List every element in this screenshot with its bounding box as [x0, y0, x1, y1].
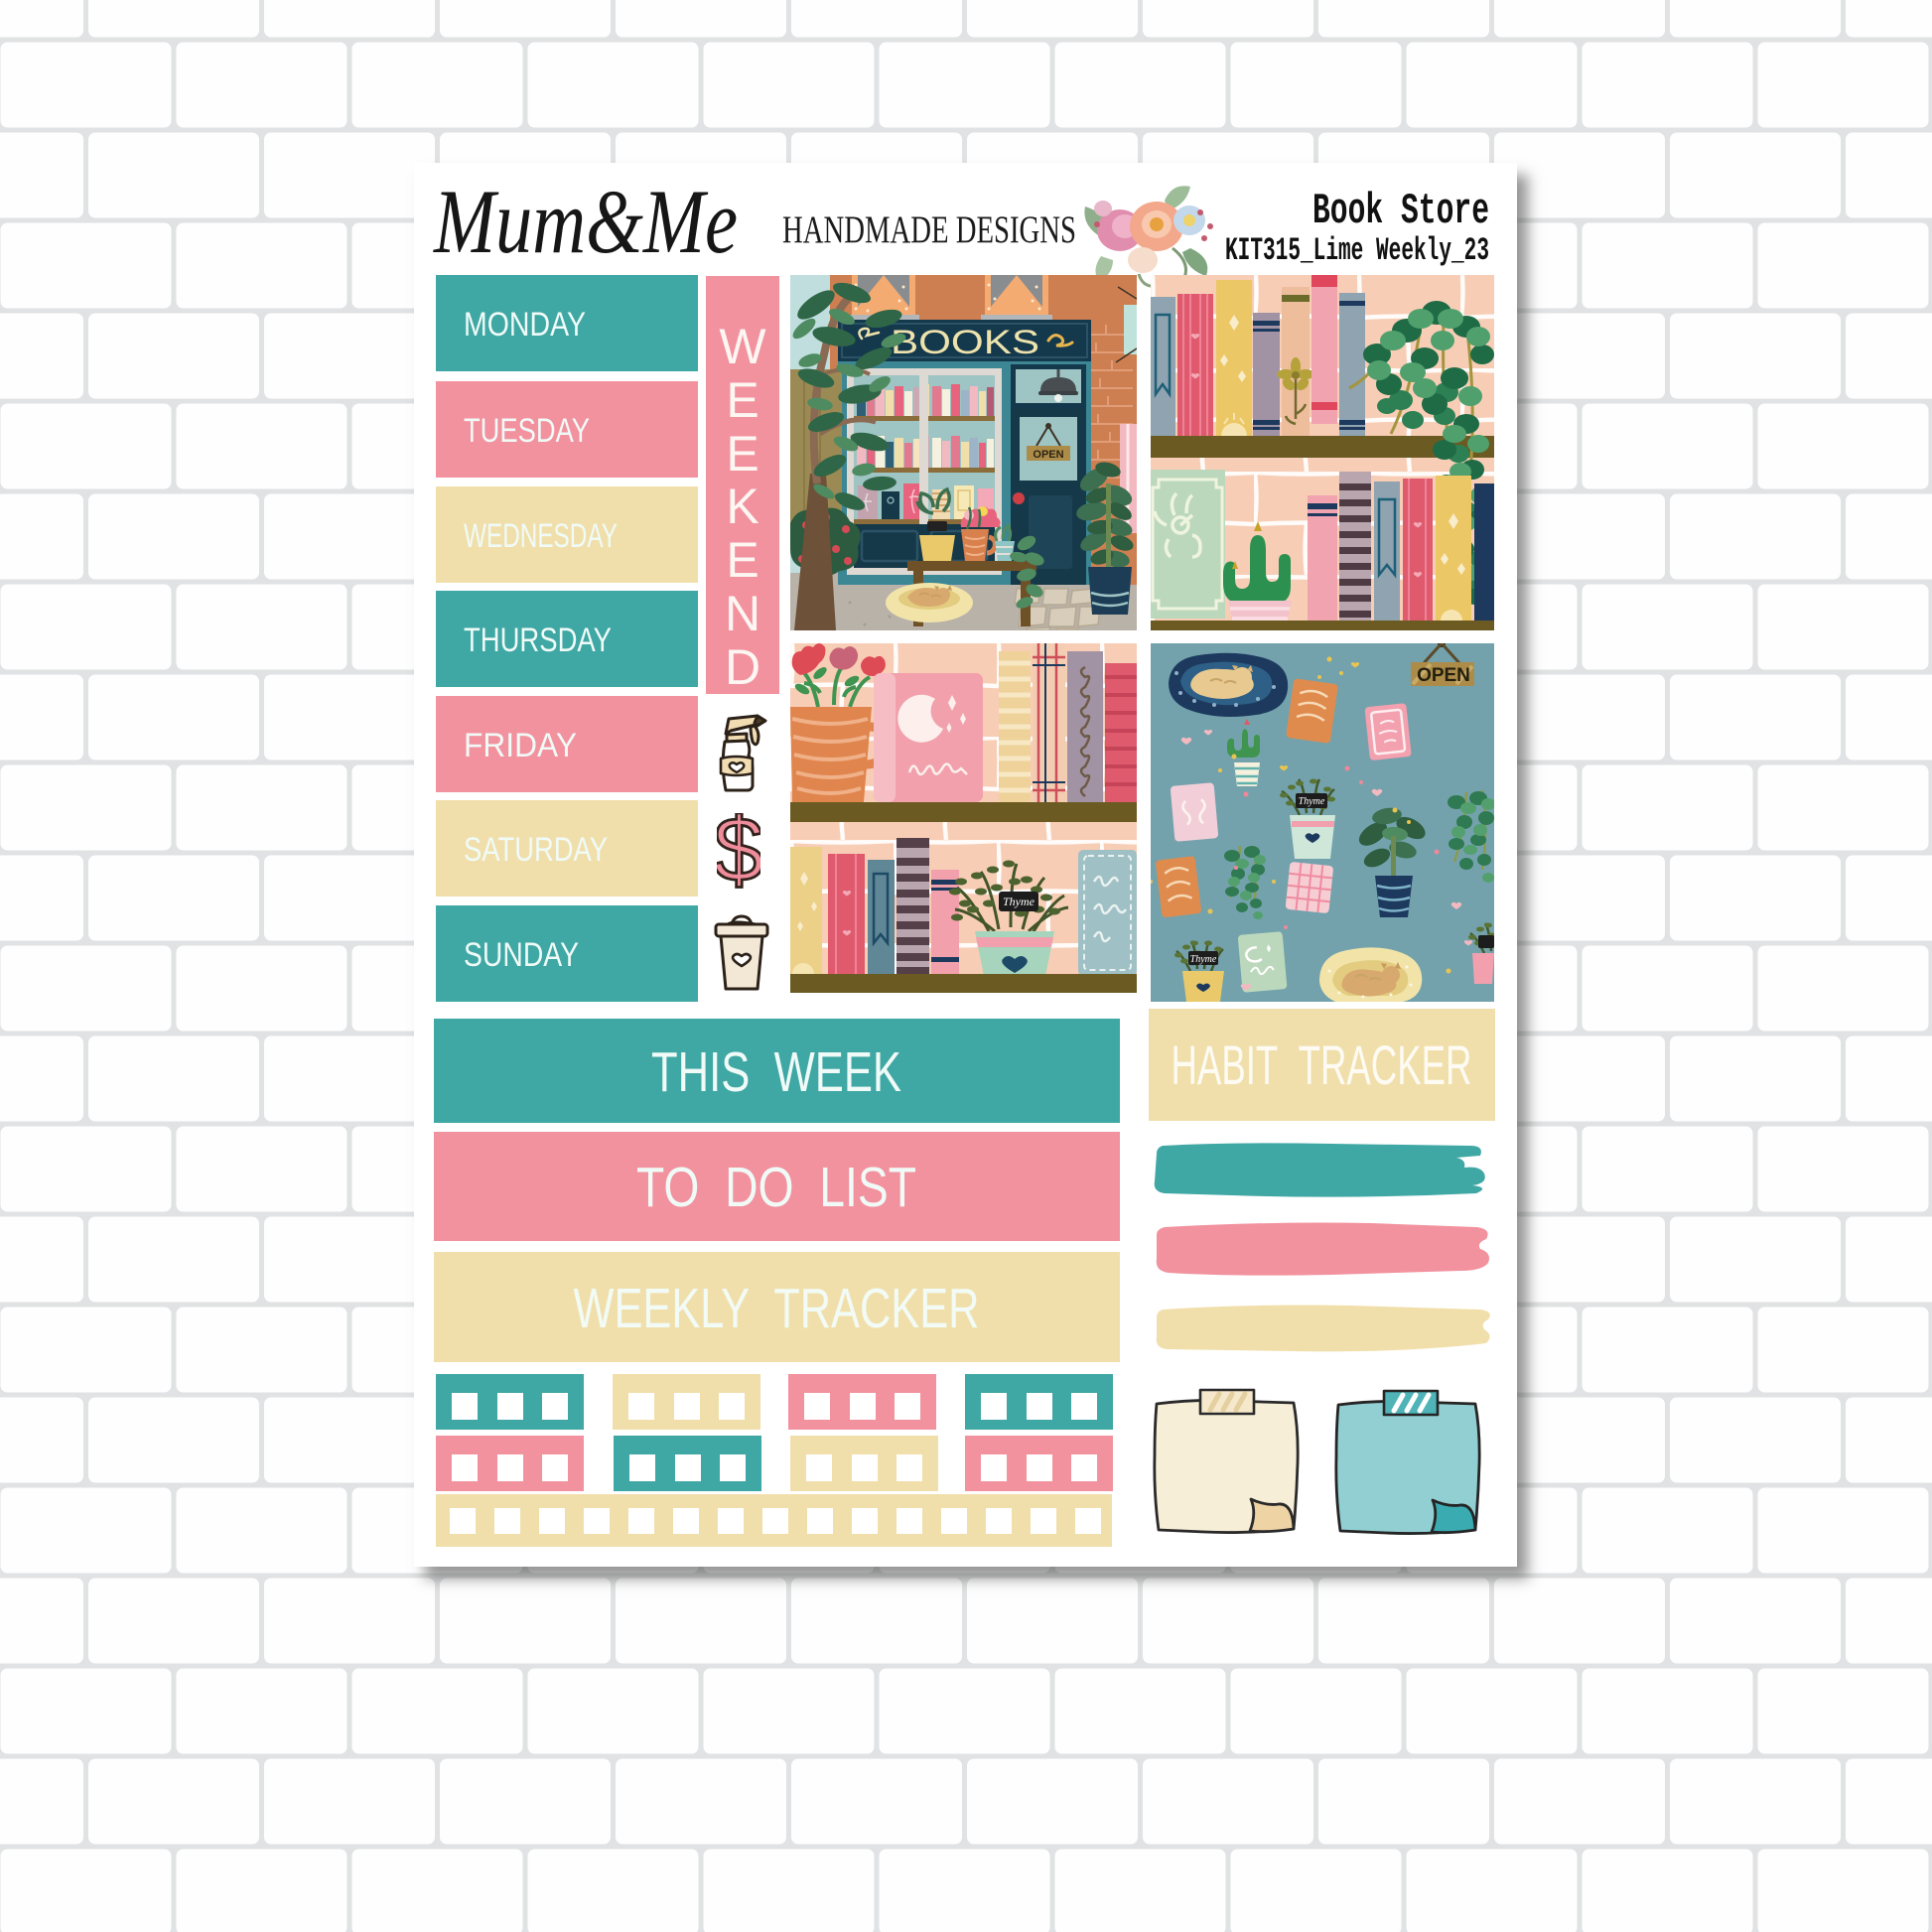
svg-text:Thyme: Thyme	[1003, 895, 1035, 908]
svg-text:MONDAY: MONDAY	[464, 306, 586, 344]
svg-text:WEDNESDAY: WEDNESDAY	[464, 517, 618, 555]
svg-text:OPEN: OPEN	[1417, 665, 1470, 686]
svg-text:KIT315_Lime Weekly_23: KIT315_Lime Weekly_23	[1225, 232, 1489, 269]
svg-text:TUESDAY: TUESDAY	[464, 412, 590, 450]
svg-text:SATURDAY: SATURDAY	[464, 831, 608, 869]
svg-text:HABIT TRACKER: HABIT TRACKER	[1172, 1034, 1472, 1096]
svg-text:$: $	[717, 813, 760, 897]
svg-text:BOOKS: BOOKS	[891, 324, 1039, 361]
svg-text:Thyme: Thyme	[1299, 796, 1325, 807]
svg-text:SUNDAY: SUNDAY	[464, 936, 579, 974]
svg-text:FRIDAY: FRIDAY	[464, 727, 577, 764]
svg-text:TO DO LIST: TO DO LIST	[636, 1156, 916, 1219]
svg-text:OPEN: OPEN	[1033, 449, 1063, 461]
svg-text:HANDMADE DESIGNS: HANDMADE DESIGNS	[782, 208, 1076, 251]
svg-text:Thyme: Thyme	[1190, 954, 1217, 965]
svg-text:WEEKLY TRACKER: WEEKLY TRACKER	[574, 1277, 980, 1340]
svg-text:THURSDAY: THURSDAY	[464, 621, 612, 659]
svg-text:Book Store: Book Store	[1312, 187, 1489, 230]
svg-text:Mum&Me: Mum&Me	[432, 171, 738, 264]
svg-text:THIS WEEK: THIS WEEK	[651, 1040, 901, 1104]
